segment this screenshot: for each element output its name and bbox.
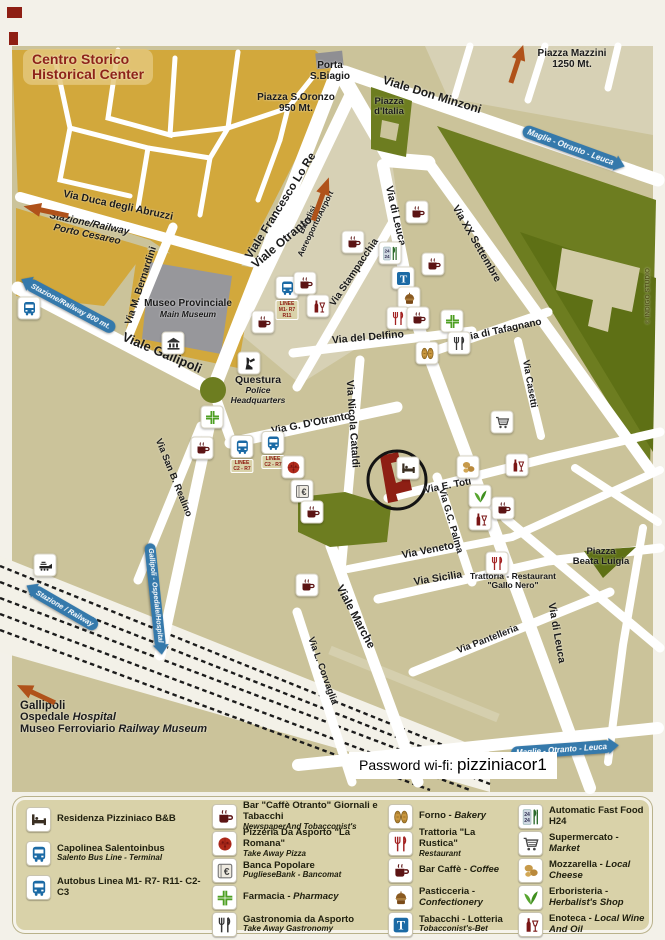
svg-text:T: T: [399, 273, 407, 285]
legend-item-title: Enoteca -: [549, 913, 594, 924]
legend-column-2: Bar "Caffè Otranto" Giornali e TabacchiN…: [212, 800, 382, 930]
questura: QuesturaPoliceHeadquarters: [231, 375, 286, 405]
gallipoli-info-text-italic: Railway Museum: [118, 723, 207, 735]
legend-item: Trattoria "La Rustica"Restaurant: [388, 831, 512, 856]
legend-item-text: Capolinea SalentoinbusSalento Bus Line -…: [57, 844, 165, 864]
gallipoli-info-text-italic: Hospital: [73, 711, 116, 723]
bakery-icon: [416, 342, 439, 365]
bakery-marker: [416, 342, 439, 365]
bus-marker: LINEEC2 - R7: [230, 435, 253, 473]
coffee-icon: [212, 804, 237, 829]
legend-item: Pizzeria Da Asporto "La Romana"Take Away…: [212, 831, 382, 856]
gastronomia-marker: [448, 332, 471, 355]
gallipoli-info: GallipoliOspedale HospitalMuseo Ferrovia…: [20, 700, 207, 736]
train-marker: [34, 554, 57, 577]
trattoria-gallo-nero-text: "Gallo Nero": [487, 580, 538, 590]
bus-lines-tag-text: C2 - R7: [233, 466, 250, 472]
cart-icon: [518, 831, 543, 856]
legend-item-title: Automatic Fast Food H24: [549, 805, 643, 827]
coffee-marker: [407, 307, 430, 330]
mozzarella-marker: [457, 456, 480, 479]
legend-item-title-english: Pharmacy: [293, 891, 338, 902]
trattoria-marker: [486, 552, 509, 575]
legend-item-title: Pizzeria Da Asporto "La Romana": [243, 827, 350, 849]
gallipoli-info-text: Museo Ferroviario: [20, 723, 118, 735]
legend-column-4: 2424Automatic Fast Food H24Supermercato …: [518, 800, 648, 930]
piazza-s-oronzo-text: Piazza S.Oronzo: [257, 92, 335, 103]
coffee-marker: [301, 501, 324, 524]
bed-icon: [26, 807, 51, 832]
legend-item: Erboristeria - Herbalist's Shop: [518, 885, 648, 910]
coffee-icon: [342, 231, 365, 254]
coffee-marker: [252, 311, 275, 334]
coffee-marker: [294, 272, 317, 295]
coffee-marker: [342, 231, 365, 254]
legend-item-title: Capolinea Salentoinbus: [57, 843, 165, 854]
bar_wine-marker: [307, 295, 330, 318]
piazza-d-italia-text: d'Italia: [374, 106, 404, 117]
svg-text:24: 24: [384, 248, 390, 253]
legend-panel: Residenza Pizziniaco B&BCapolinea Salent…: [13, 797, 652, 933]
legend-item: Autobus Linea M1- R7- R11- C2- C3: [26, 875, 206, 900]
pizza-marker: [282, 456, 305, 479]
legend-item-title: Forno -: [419, 810, 454, 821]
enoteca-icon: [518, 912, 543, 937]
pastry-icon: [388, 885, 413, 910]
bus-lines-tag: LINEEM1- R7R11: [276, 300, 298, 320]
coffee-icon: [388, 858, 413, 883]
legend-item: Bar "Caffè Otranto" Giornali e TabacchiN…: [212, 804, 382, 829]
fastfood24-icon: 2424: [379, 242, 402, 265]
svg-text:24: 24: [384, 254, 390, 259]
legend-item: Enoteca - Local Wine And Oil: [518, 912, 648, 937]
legend-item-text: Banca PopolarePuglieseBank - Bancomat: [243, 861, 341, 881]
bar_wine-icon: [469, 508, 492, 531]
bank-marker: €: [291, 480, 314, 503]
trattoria-gallo-nero: Trattoria - Restaurant"Gallo Nero": [470, 572, 556, 590]
legend-item-text: Residenza Pizziniaco B&B: [57, 814, 176, 825]
bank-icon: €: [212, 858, 237, 883]
cart-icon: [491, 411, 514, 434]
police-marker: [238, 352, 261, 375]
legend-item-subtitle: PuglieseBank - Bancomat: [243, 871, 341, 880]
centro-storico-text: Historical Center: [32, 66, 144, 82]
bus-icon: [26, 841, 51, 866]
legend-item-title: Gastronomia da Asporto: [243, 914, 354, 925]
legend-item-text: Trattoria "La Rustica"Restaurant: [419, 828, 512, 858]
coffee-icon: [296, 574, 319, 597]
bar_wine-marker: [469, 508, 492, 531]
indigo-credit-text: © INDIGO STUDIO: [644, 268, 651, 324]
legend-item-title: Trattoria "La Rustica": [419, 827, 475, 849]
piazza-mazzini-text: Piazza Mazzini: [538, 48, 607, 59]
wifi-label: Password wi-fi:: [359, 757, 457, 773]
coffee-icon: [252, 311, 275, 334]
train-icon: [34, 554, 57, 577]
arrow-gallipoli-ospedale-head-icon: [153, 644, 170, 656]
wifi-password: pizziniacor1: [457, 755, 547, 774]
neighbourhood-map-page: MAPPA DEL VICINATO - NEIGHBOURHOOD MAP: [0, 0, 665, 940]
legend-item-text: Erboristeria - Herbalist's Shop: [549, 887, 648, 908]
legend-item-text: Tabacchi - LotteriaTobacconist's-Bet: [419, 915, 503, 935]
coffee-icon: [492, 497, 515, 520]
legend-item-title: Tabacchi - Lotteria: [419, 914, 503, 925]
bus-icon: [26, 875, 51, 900]
legend-item-title: Banca Popolare: [243, 860, 315, 871]
legend-item-subtitle: Salento Bus Line - Terminal: [57, 854, 165, 863]
legend-item-title: Supermercato -: [549, 832, 619, 843]
coffee-marker: [422, 253, 445, 276]
coffee-icon: [294, 272, 317, 295]
trattoria-icon: [486, 552, 509, 575]
museo-provinciale: Museo ProvincialeMain Museum: [144, 299, 232, 319]
legend-column-1: Residenza Pizziniaco B&BCapolinea Salent…: [26, 800, 206, 930]
wifi-password-note: Password wi-fi: pizziniacor1: [349, 752, 557, 779]
legend-item-title: Bar "Caffè Otranto" Giornali e Tabacchi: [243, 800, 378, 822]
cart-marker: [491, 411, 514, 434]
piazza-s-oronzo: Piazza S.Oronzo950 Mt.: [257, 93, 335, 115]
legend-item-text: Supermercato - Market: [549, 833, 648, 854]
legend-item-title: Autobus Linea M1- R7- R11- C2- C3: [57, 876, 201, 898]
mozzarella-icon: [457, 456, 480, 479]
museum-icon: [162, 332, 185, 355]
legend-item-title-english: Market: [549, 843, 580, 854]
centro-storico: Centro StoricoHistorical Center: [23, 49, 153, 85]
bus-lines-tag-text: C2 - R7: [264, 462, 281, 468]
legend-item-text: Enoteca - Local Wine And Oil: [549, 914, 648, 935]
fastfood24-icon: 2424: [518, 804, 543, 829]
coffee-marker: [296, 574, 319, 597]
coffee-icon: [191, 437, 214, 460]
legend-item: 2424Automatic Fast Food H24: [518, 804, 648, 829]
legend-item-title-english: Confectionery: [419, 897, 483, 908]
centro-storico-text: Centro Storico: [32, 51, 129, 67]
legend-item-subtitle: Take Away Gastronomy: [243, 925, 354, 934]
bus-icon: [261, 431, 284, 454]
legend-item-subtitle: Tobacconist's-Bet: [419, 925, 503, 934]
legend-item-text: Bar Caffè - Coffee: [419, 865, 499, 876]
porta-s-biagio-text: S.Biagio: [310, 71, 350, 82]
gastronomia-icon: [212, 912, 237, 937]
legend-item-title: Residenza Pizziniaco B&B: [57, 813, 176, 824]
pharmacy-marker: [201, 406, 224, 429]
legend-item-title: Erboristeria -: [549, 886, 608, 897]
bus-icon: [230, 435, 253, 458]
bus-icon: [18, 297, 41, 320]
arrow-maglie-otranto-leuca-bottom-head-icon: [608, 737, 619, 754]
legend-item-text: Farmacia - Pharmacy: [243, 892, 339, 903]
svg-text:€: €: [223, 866, 229, 877]
pharmacy-icon: [441, 310, 464, 333]
legend-item: Pasticceria - Confectionery: [388, 885, 512, 910]
pharmacy-icon: [201, 406, 224, 429]
coffee-marker: [191, 437, 214, 460]
legend-item-title: Farmacia -: [243, 891, 293, 902]
legend-item: Mozzarella - Local Cheese: [518, 858, 648, 883]
police-icon: [238, 352, 261, 375]
mozzarella-icon: [518, 858, 543, 883]
piazza-beata-luigia: PiazzaBeata Luigia: [573, 547, 630, 568]
coffee-marker: [406, 201, 429, 224]
pizza-icon: [282, 456, 305, 479]
trattoria-icon: [388, 831, 413, 856]
piazza-mazzini-text: 1250 Mt.: [552, 59, 591, 70]
fastfood24-marker: 2424: [379, 242, 402, 265]
gastronomia-icon: [448, 332, 471, 355]
legend-item-title: Mozzarella -: [549, 859, 606, 870]
legend-item-text: Forno - Bakery: [419, 811, 486, 822]
indigo-credit: © INDIGO STUDIO: [644, 268, 651, 324]
svg-text:24: 24: [524, 811, 530, 817]
bed-marker: [397, 457, 420, 480]
bus-marker: [18, 297, 41, 320]
legend-item-title: Pasticceria -: [419, 886, 475, 897]
herbs-marker: [469, 485, 492, 508]
bus-lines-tag-text: R11: [279, 313, 295, 319]
museo-provinciale-text: Museo Provinciale: [144, 298, 232, 309]
questura-text-italic: Headquarters: [231, 395, 286, 405]
coffee-icon: [406, 201, 429, 224]
svg-text:24: 24: [524, 818, 530, 824]
coffee-icon: [422, 253, 445, 276]
coffee-marker: [492, 497, 515, 520]
piazza-s-oronzo-text: 950 Mt.: [279, 103, 313, 114]
piazza-beata-luigia-text: Beata Luigia: [573, 556, 630, 567]
herbs-icon: [469, 485, 492, 508]
legend-item: TTabacchi - LotteriaTobacconist's-Bet: [388, 912, 512, 937]
legend-item: Supermercato - Market: [518, 831, 648, 856]
piazza-mazzini: Piazza Mazzini1250 Mt.: [538, 49, 607, 71]
gallipoli-info-text: Ospedale: [20, 711, 73, 723]
legend-item-text: Mozzarella - Local Cheese: [549, 860, 648, 881]
porta-s-biagio-text: Porta: [317, 60, 343, 71]
legend-item-text: Pizzeria Da Asporto "La Romana"Take Away…: [243, 828, 382, 858]
svg-text:€: €: [301, 487, 306, 497]
legend-item: Gastronomia da AsportoTake Away Gastrono…: [212, 912, 382, 937]
legend-item: Residenza Pizziniaco B&B: [26, 807, 206, 832]
museo-provinciale-text-italic: Main Museum: [160, 309, 216, 319]
legend-item-text: Automatic Fast Food H24: [549, 806, 648, 827]
enoteca-marker: [506, 454, 529, 477]
coffee-icon: [407, 307, 430, 330]
museum-marker: [162, 332, 185, 355]
piazza-d-italia: Piazzad'Italia: [374, 97, 404, 118]
legend-item-title-english: Bakery: [454, 810, 486, 821]
bed-icon: [397, 457, 420, 480]
pizza-icon: [212, 831, 237, 856]
svg-text:T: T: [396, 918, 405, 932]
legend-item-title-english: Herbalist's Shop: [549, 897, 624, 908]
legend-item-title: Bar Caffè -: [419, 864, 470, 875]
legend-item-title-english: Coffee: [470, 864, 499, 875]
legend-item: Bar Caffè - Coffee: [388, 858, 512, 883]
legend-item-text: Pasticceria - Confectionery: [419, 887, 512, 908]
bank-icon: €: [291, 480, 314, 503]
legend-item: Capolinea SalentoinbusSalento Bus Line -…: [26, 841, 206, 866]
legend-item: €Banca PopolarePuglieseBank - Bancomat: [212, 858, 382, 883]
pharmacy-icon: [212, 885, 237, 910]
coffee-icon: [301, 501, 324, 524]
bakery-icon: [388, 804, 413, 829]
legend-item-text: Autobus Linea M1- R7- R11- C2- C3: [57, 877, 206, 898]
bar_wine-icon: [307, 295, 330, 318]
bus-lines-tag: LINEEC2 - R7: [230, 459, 253, 473]
legend-item: Forno - Bakery: [388, 804, 512, 829]
pharmacy-marker: [441, 310, 464, 333]
herbs-icon: [518, 885, 543, 910]
legend-item: Farmacia - Pharmacy: [212, 885, 382, 910]
tabacchi-icon: T: [388, 912, 413, 937]
enoteca-icon: [506, 454, 529, 477]
porta-s-biagio: PortaS.Biagio: [310, 61, 350, 83]
legend-item-text: Gastronomia da AsportoTake Away Gastrono…: [243, 915, 354, 935]
legend-column-3: Forno - BakeryTrattoria "La Rustica"Rest…: [388, 800, 512, 930]
